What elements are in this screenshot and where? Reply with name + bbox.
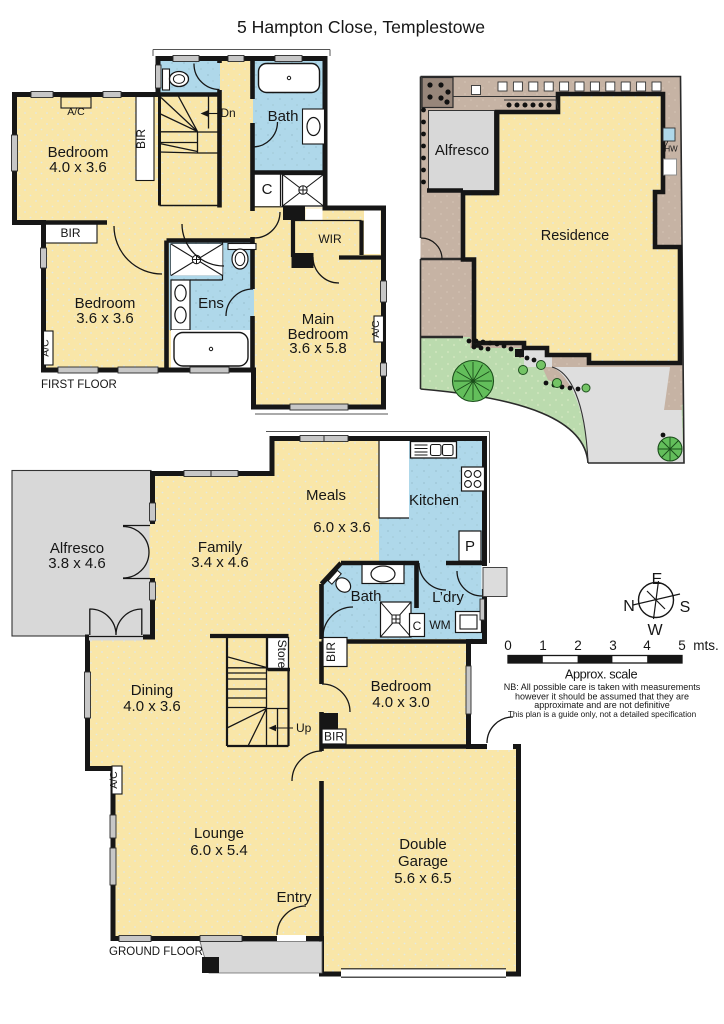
svg-text:Kitchen: Kitchen [409,492,459,509]
svg-text:WIR: WIR [318,232,342,246]
svg-text:HW: HW [664,145,678,154]
svg-text:BIR: BIR [60,226,80,240]
svg-text:5.6 x 6.5: 5.6 x 6.5 [394,870,452,887]
svg-text:approximate and are not defini: approximate and are not definitive [534,700,670,710]
svg-text:3.6 x 3.6: 3.6 x 3.6 [76,310,134,327]
svg-text:BIR: BIR [134,129,148,149]
svg-text:6.0 x 3.6: 6.0 x 3.6 [313,519,371,536]
svg-text:4.0 x 3.6: 4.0 x 3.6 [123,698,181,715]
svg-text:Lounge: Lounge [194,825,244,842]
svg-text:5 Hampton Close, Templestowe: 5 Hampton Close, Templestowe [237,17,485,37]
svg-text:2: 2 [574,638,582,653]
svg-text:A/C: A/C [108,771,120,789]
svg-text:Meals: Meals [306,487,346,504]
svg-text:Alfresco: Alfresco [435,142,489,159]
svg-text:Up: Up [296,721,312,735]
svg-text:L’dry: L’dry [432,589,464,606]
svg-text:4.0 x 3.6: 4.0 x 3.6 [49,159,107,176]
svg-text:E: E [652,571,663,588]
svg-text:6.0 x 5.4: 6.0 x 5.4 [190,842,248,859]
svg-text:3.8 x 4.6: 3.8 x 4.6 [48,555,106,572]
svg-text:Entry: Entry [276,889,312,906]
svg-text:3.4 x 4.6: 3.4 x 4.6 [191,554,249,571]
svg-text:W: W [647,622,663,639]
svg-text:FIRST FLOOR: FIRST FLOOR [41,379,117,391]
svg-text:5: 5 [678,638,686,653]
svg-text:Ens: Ens [198,295,224,312]
svg-text:S: S [680,599,691,616]
svg-text:Double: Double [399,836,447,853]
svg-text:This plan is a guide only, not: This plan is a guide only, not a detaile… [508,710,697,719]
svg-text:BIR: BIR [324,642,338,662]
svg-text:0: 0 [504,638,512,653]
svg-text:WM: WM [429,618,450,632]
svg-text:P: P [465,538,475,555]
svg-text:3: 3 [609,638,617,653]
svg-text:1: 1 [539,638,547,653]
svg-text:Bedroom: Bedroom [371,678,432,695]
svg-text:NB: All possible care is taken: NB: All possible care is taken with meas… [504,682,701,692]
svg-text:4.0 x 3.0: 4.0 x 3.0 [372,694,430,711]
svg-text:Bath: Bath [351,588,382,605]
svg-text:Dining: Dining [131,682,174,699]
svg-text:A/C: A/C [67,106,85,118]
svg-text:N: N [623,598,635,615]
svg-text:Approx. scale: Approx. scale [565,667,638,682]
svg-text:mts.: mts. [693,638,719,653]
svg-text:Residence: Residence [541,228,610,244]
svg-text:Garage: Garage [398,853,448,870]
svg-text:A/C: A/C [40,339,52,357]
svg-text:BIR: BIR [324,730,344,744]
svg-text:A/C: A/C [370,320,382,338]
svg-text:3.6 x 5.8: 3.6 x 5.8 [289,340,347,357]
svg-text:Store: Store [275,640,289,669]
svg-text:C: C [413,619,422,633]
svg-text:Bath: Bath [268,108,299,125]
svg-text:Dn: Dn [220,106,235,120]
svg-text:4: 4 [643,638,651,653]
svg-text:C: C [262,181,273,198]
svg-text:GROUND FLOOR: GROUND FLOOR [109,946,203,958]
